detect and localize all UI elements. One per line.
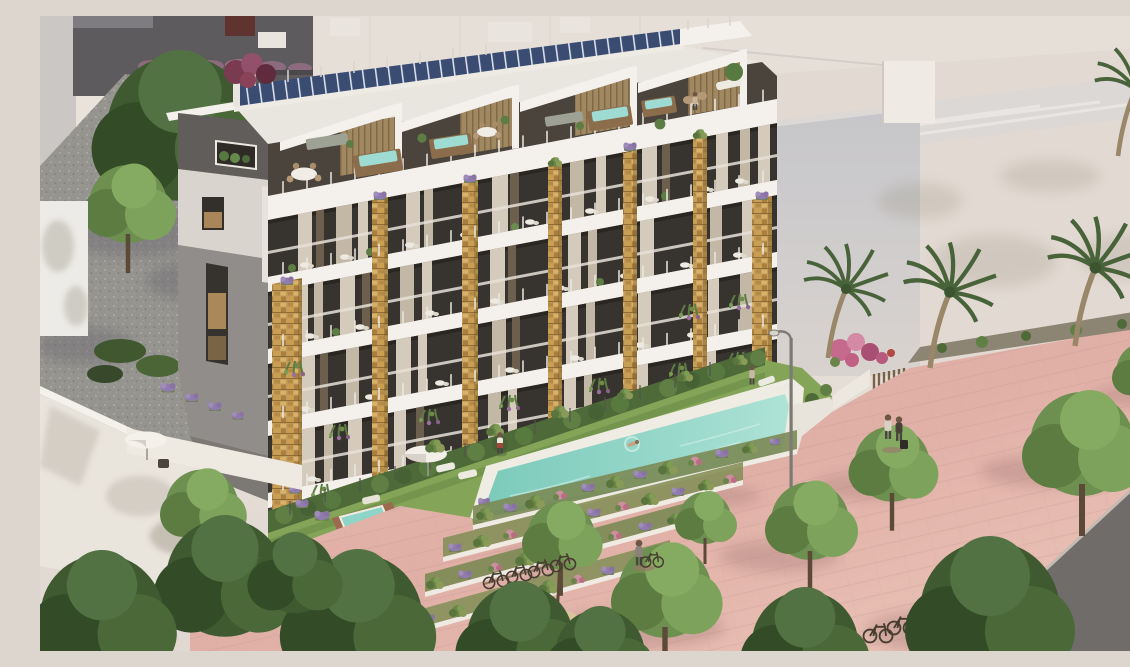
hot-tub — [429, 133, 474, 159]
glass-balustrades — [268, 87, 777, 493]
sky-backdrop — [40, 16, 1130, 651]
poolside-right — [749, 365, 834, 466]
wicker-chairs — [683, 92, 707, 106]
penthouse-level — [224, 16, 777, 196]
floor4-slab — [268, 180, 777, 292]
lounger — [362, 494, 381, 505]
floor1-windows — [268, 326, 777, 651]
person-on-lawn — [749, 365, 754, 384]
red-shrub — [887, 349, 895, 357]
tree — [92, 50, 269, 201]
privacy-hedge — [268, 347, 766, 533]
rooftop-plant-boxes — [258, 17, 590, 48]
stone-pier — [462, 180, 478, 469]
mauve-roof-planting — [138, 58, 313, 75]
kerb-line — [915, 320, 1130, 357]
promenade-tree — [675, 491, 737, 564]
garden-parasol — [405, 446, 447, 477]
lawn — [268, 360, 832, 588]
promenade-tree — [1022, 390, 1130, 536]
penthouse-divider-walls — [395, 49, 747, 169]
pool-deck — [470, 378, 804, 523]
floor3-slab — [268, 252, 777, 364]
stone-piers — [272, 137, 772, 530]
ground-bushes — [87, 339, 180, 383]
promenade-tree — [849, 425, 939, 531]
architectural-rendering — [40, 16, 1130, 651]
palm-tree — [1095, 46, 1130, 156]
swimming-pool — [483, 394, 789, 516]
hanging-balcony-plants — [280, 129, 768, 500]
plunge-pool — [332, 502, 402, 543]
background — [40, 16, 1130, 651]
hot-tub — [353, 148, 404, 177]
street-lamp — [769, 330, 793, 513]
floor4-windows — [268, 116, 777, 476]
promenade — [190, 306, 1130, 651]
facade — [268, 87, 777, 651]
tree — [40, 550, 177, 651]
flower-terraces — [418, 430, 797, 633]
gable-window-strip — [206, 263, 228, 365]
pool-end-wall — [788, 397, 834, 466]
potted-plants — [346, 116, 665, 148]
floor2-slab — [268, 324, 777, 436]
dining-set — [473, 121, 501, 139]
tree — [546, 606, 655, 651]
bougainvillea — [224, 53, 276, 88]
floor3-windows — [268, 186, 777, 546]
bicycle — [864, 623, 893, 642]
penthouse-recess — [268, 62, 777, 196]
stone-pier — [693, 137, 707, 412]
figures — [482, 414, 916, 642]
vegetation-foreground — [522, 46, 1130, 651]
promenade-tree — [1112, 341, 1130, 421]
penthouse-parapet-band — [268, 99, 777, 220]
rooftop-box — [883, 61, 935, 123]
person-with-bike — [633, 540, 663, 571]
pedestrian-couple — [882, 414, 908, 453]
road-kerb — [958, 454, 1130, 651]
lounger — [757, 375, 775, 387]
lounger — [774, 382, 792, 394]
gable-window — [202, 197, 224, 230]
floor2-windows — [268, 256, 777, 616]
bicycle — [888, 615, 917, 634]
solar-panel-array — [233, 21, 752, 112]
roof-railing-posts — [255, 16, 730, 86]
dark-building — [73, 16, 313, 96]
penthouse-terraces — [287, 63, 743, 182]
tree-shadows-on-gravel — [40, 205, 255, 364]
gravel-planting-bed — [908, 306, 1130, 363]
lounger — [436, 462, 456, 473]
maroon-rooftop-box — [225, 16, 255, 36]
stone-pier — [752, 196, 772, 392]
left-environment — [40, 50, 300, 468]
tree — [83, 164, 176, 274]
palm-shadows-on-wall — [878, 160, 1130, 287]
cream-backdrop-buildings — [313, 16, 1130, 376]
palm-tree — [904, 243, 996, 368]
terrace-chair — [158, 459, 169, 468]
ground-floor — [268, 396, 777, 596]
lower-left-terrace — [40, 383, 302, 596]
potted-tree — [725, 63, 743, 81]
bed-shrubs — [937, 315, 1130, 353]
luggage — [900, 440, 908, 449]
stone-pier — [272, 278, 302, 530]
corner-trim — [262, 186, 294, 286]
stone-pier — [623, 150, 637, 429]
promenade-tree — [765, 481, 858, 591]
planter-window — [216, 141, 256, 169]
hot-tub — [641, 95, 677, 117]
floor1-fascia — [268, 396, 777, 508]
outdoor-sofa — [305, 133, 348, 150]
gravel-yard — [40, 74, 300, 468]
tree — [247, 532, 342, 613]
garden-fence-posts — [290, 351, 745, 515]
bicycle-rack — [482, 552, 576, 589]
apartment-building — [166, 16, 777, 651]
roof-deck — [236, 46, 762, 144]
fruit-tree — [160, 468, 247, 570]
right-building-shaded-face — [740, 109, 920, 376]
retaining-walls — [829, 333, 937, 414]
stone-pier — [548, 164, 562, 447]
gable-end-wall — [166, 101, 294, 501]
hot-tub — [587, 105, 634, 132]
pink-bougainvillea — [829, 333, 888, 367]
tree — [154, 515, 297, 637]
tree — [740, 587, 869, 651]
right-building-marble-parapet — [740, 72, 1130, 166]
person-walking-by-pool — [495, 432, 507, 456]
timber-fence — [874, 368, 904, 414]
private-garden-items — [289, 355, 748, 543]
person-on-roof-terrace — [692, 92, 697, 110]
garden-and-pool — [268, 333, 937, 588]
white-building-upper-left — [40, 201, 88, 336]
terrace-parasol — [125, 432, 169, 469]
dining-set — [287, 163, 322, 183]
tree — [280, 549, 436, 651]
palm-tree — [804, 244, 888, 358]
road — [958, 454, 1130, 651]
stone-pier — [372, 197, 388, 491]
walkway-wall — [127, 428, 302, 490]
white-rooftop-terrace — [40, 394, 200, 596]
lounger — [715, 77, 742, 90]
background-wall-left — [40, 16, 76, 181]
sawtooth-rooflines — [280, 50, 743, 151]
lounger — [458, 469, 478, 480]
swimmer — [625, 437, 639, 451]
tree-in-planter — [522, 501, 603, 624]
tree-shadows-on-paving — [498, 386, 1130, 651]
right-building-face — [740, 46, 1130, 376]
tree — [905, 536, 1075, 651]
tree — [455, 581, 584, 651]
foreground-trees — [40, 515, 1075, 651]
palm-tree — [1048, 217, 1130, 346]
outdoor-sofa — [544, 111, 583, 127]
